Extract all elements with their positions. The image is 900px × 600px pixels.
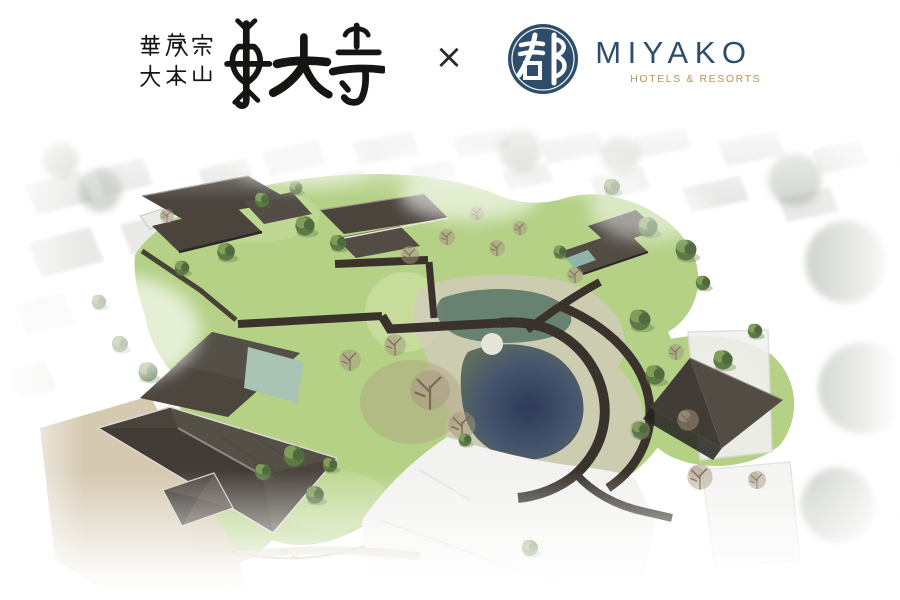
miyako-emblem <box>507 23 579 95</box>
sect-line2-glyphs <box>141 65 210 86</box>
miyako-brand-name: MIYAKO <box>595 37 763 70</box>
calligraphy-dai <box>273 37 329 95</box>
todaiji-logo <box>137 10 385 110</box>
logo-header: × MIYAKO HOTELS & RESORTS <box>0 10 900 120</box>
collaboration-x: × <box>435 40 464 74</box>
todaiji-sect-text <box>137 32 215 90</box>
miyako-logo: MIYAKO HOTELS & RESORTS <box>507 23 763 95</box>
bridge-landing <box>481 333 503 355</box>
sect-line1-glyphs <box>141 34 211 56</box>
miyako-tagline: HOTELS & RESORTS <box>595 73 763 85</box>
calligraphy-to <box>227 21 269 106</box>
todaiji-calligraphy <box>217 14 385 110</box>
calligraphy-ji <box>332 26 382 103</box>
press-visual: × MIYAKO HOTELS & RESORTS <box>0 0 900 600</box>
rough-ground <box>360 360 464 444</box>
miyako-wordmark: MIYAKO HOTELS & RESORTS <box>595 37 763 85</box>
